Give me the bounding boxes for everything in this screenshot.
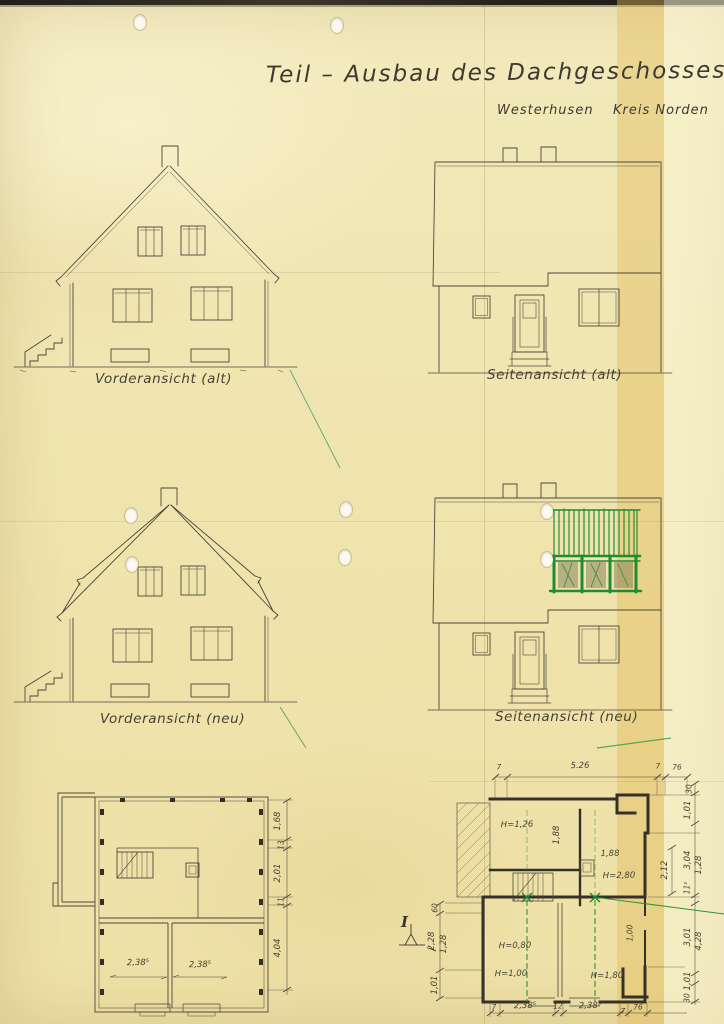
dim-label: 7	[656, 761, 661, 770]
dim-label: 1,88	[600, 849, 619, 859]
dim-label: 11	[277, 897, 286, 907]
dim-label: 7	[621, 1006, 626, 1015]
new-dormer-green-markup	[550, 509, 641, 592]
side-elevation-old-drawing	[425, 145, 675, 375]
floor-plan-right-drawing	[395, 755, 724, 1024]
dim-label: 1,01	[683, 972, 693, 991]
dim-label: 13	[277, 840, 286, 850]
dim-label: 4,28	[694, 932, 704, 951]
dim-label: 1,01	[683, 801, 693, 820]
height-label: H=1,26	[501, 820, 534, 831]
height-label: H=0,80	[499, 941, 532, 952]
side-elevation-new-drawing	[425, 480, 680, 715]
height-label: H=1,80	[591, 971, 624, 982]
floor-plan-left: 2,38⁵ 2,38⁵ 1,68 13 2,01 11 4,04	[50, 785, 310, 1024]
front-elevation-new-drawing	[10, 485, 300, 720]
front-elevation-new-label: Vorderansicht (neu)	[100, 711, 245, 727]
punch-hole	[541, 552, 553, 567]
dim-label: 12	[553, 1001, 563, 1010]
front-elevation-old-drawing	[10, 140, 300, 372]
floor-plan-left-drawing	[50, 785, 310, 1024]
punch-hole	[331, 18, 343, 33]
drawing-district: Kreis Norden	[613, 103, 709, 118]
dim-label: 4,04	[273, 939, 283, 958]
dim-label: 1,88	[552, 826, 562, 845]
height-label: H=1,00	[495, 969, 528, 980]
dim-label: 5.26	[570, 761, 589, 771]
dim-label: 1,68	[273, 812, 283, 831]
dim-label: 2,38⁵	[127, 958, 150, 968]
dim-label: 2,38⁵	[514, 1001, 537, 1011]
punch-hole	[339, 550, 351, 565]
punch-hole	[541, 504, 553, 519]
dim-label: 30	[685, 784, 694, 794]
drawing-location: Westerhusen	[497, 103, 594, 118]
dim-label: 7	[497, 762, 502, 771]
punch-hole	[125, 508, 137, 523]
dim-label: 1,28	[694, 856, 704, 875]
floor-plan-right: 7 5.26 7 76 H=1,26 1,88 1,88 H=2,80 H=0,…	[395, 755, 724, 1024]
dim-label: 11⁵	[683, 882, 692, 895]
punch-hole	[126, 557, 138, 572]
dim-label: 7	[492, 1002, 497, 1011]
dim-label: 2,28	[427, 932, 437, 951]
punch-hole	[340, 502, 352, 517]
dim-label: 60	[431, 903, 440, 913]
dim-label: 76	[633, 1002, 643, 1011]
dim-label: 3,01	[683, 928, 693, 947]
paper-top-edge-shadow	[0, 5, 724, 7]
punch-hole	[134, 15, 146, 30]
dim-label: 1,00	[626, 925, 635, 942]
side-elevation-new-label: Seitenansicht (neu)	[495, 709, 638, 725]
height-label: H=2,80	[603, 871, 636, 882]
dim-label: 2,38⁵	[579, 1001, 602, 1011]
section-marker-label: I	[401, 913, 408, 931]
dim-label: 1,01	[430, 976, 440, 995]
blueprint-scan-page: Teil – Ausbau des Dachgeschosses Westerh…	[0, 0, 724, 1024]
side-elevation-old-label: Seitenansicht (alt)	[487, 367, 622, 383]
dim-label: 2,38⁵	[189, 960, 212, 970]
dim-label: 76	[672, 762, 682, 771]
dim-label: 2,01	[273, 864, 283, 883]
dim-label: 30	[683, 993, 692, 1003]
dim-label: 3,04	[683, 851, 693, 870]
drawing-title: Teil – Ausbau des Dachgeschosses	[266, 58, 724, 89]
dim-label: 1,28	[439, 935, 449, 954]
front-elevation-old-label: Vorderansicht (alt)	[95, 371, 232, 387]
dim-label: 2,12	[660, 861, 670, 880]
